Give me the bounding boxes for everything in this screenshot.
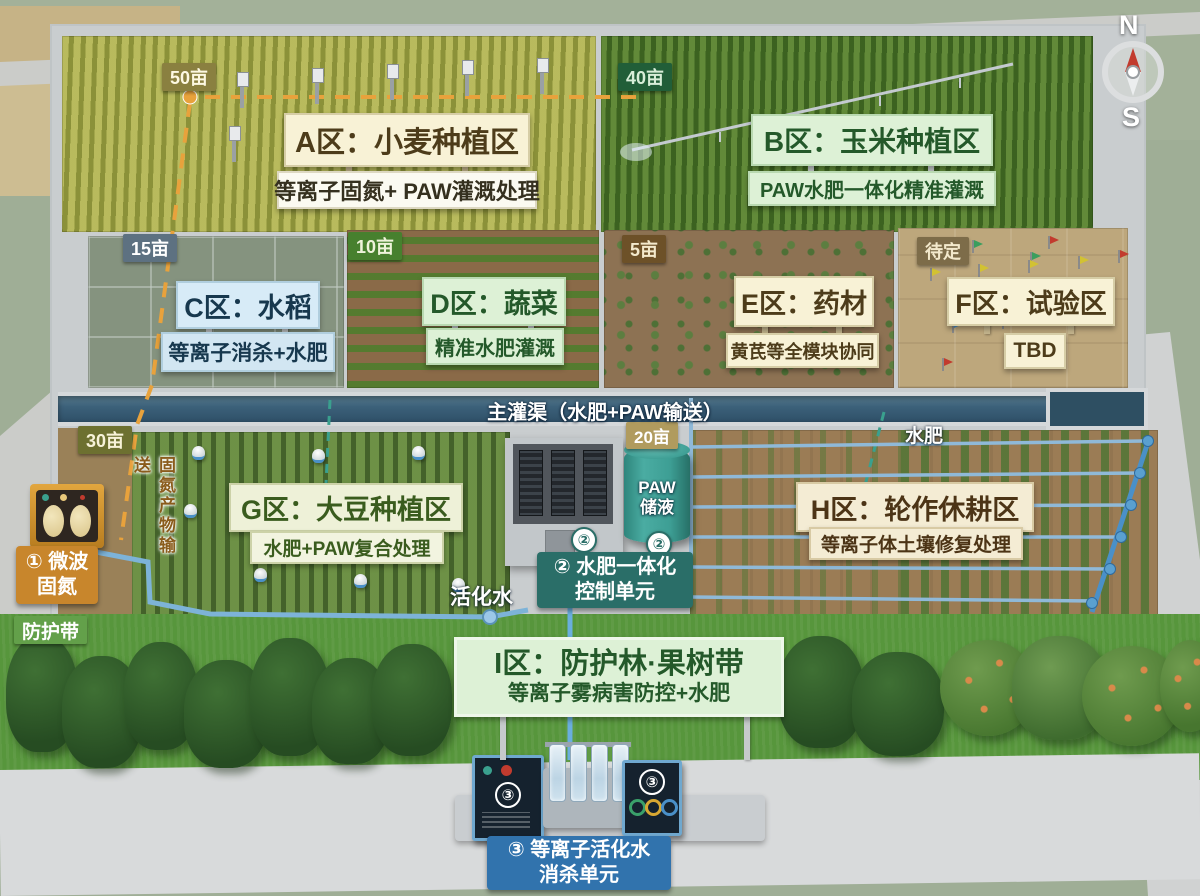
trial-flag bbox=[1048, 236, 1050, 249]
trial-flag bbox=[1118, 250, 1120, 263]
shelter-belt-badge: 防护带 bbox=[14, 616, 87, 644]
zone-h-sign-subtitle: 等离子体土壤修复处理 bbox=[809, 527, 1023, 560]
server-rack bbox=[519, 450, 543, 516]
farm-plan-diagram: PAW 储液 ② ② ③ ③ A区：小麦种植区 等离子固氮+ PAW灌溉处理 bbox=[0, 0, 1200, 896]
paw-tank-label: PAW 储液 bbox=[624, 478, 690, 519]
microwave-cavity bbox=[70, 505, 91, 537]
microwave-callout-line1: ① 微波 bbox=[26, 550, 89, 575]
zone-h-sign-title: H区：轮作休耕区 bbox=[796, 482, 1034, 532]
zone-e-sign-title: E区：药材 bbox=[734, 276, 874, 327]
zone-b-area-badge: 40亩 bbox=[618, 63, 672, 91]
microwave-machine-panel bbox=[36, 490, 98, 542]
zone-i-sign: I区：防护林·果树带 等离子雾病害防控+水肥 bbox=[454, 637, 784, 717]
sprinkler-dome bbox=[184, 504, 197, 518]
field-sensor bbox=[540, 70, 544, 94]
compass-south-label: S bbox=[1122, 102, 1140, 133]
zone-d-sign-subtitle: 精准水肥灌溉 bbox=[426, 328, 564, 365]
paw-tank-label-line2: 储液 bbox=[640, 498, 674, 517]
indicator-dot-red bbox=[501, 765, 512, 776]
evergreen-tree bbox=[778, 636, 864, 748]
zone-e-area-badge: 5亩 bbox=[622, 235, 666, 263]
zone-a-sign-subtitle: 等离子固氮+ PAW灌溉处理 bbox=[277, 171, 537, 209]
compass-icon bbox=[1101, 40, 1165, 104]
zone-g-area-badge: 30亩 bbox=[78, 426, 132, 454]
sprinkler-dome bbox=[192, 446, 205, 460]
paw-tank-label-line1: PAW bbox=[638, 478, 675, 497]
plasma-water-callout: ③ 等离子活化水 消杀单元 bbox=[487, 836, 671, 890]
step3-badge-left-panel: ③ bbox=[495, 782, 521, 808]
activated-water-label: 活化水 bbox=[450, 581, 513, 611]
microwave-cavity bbox=[43, 505, 64, 537]
status-ring-green bbox=[629, 799, 646, 816]
canal-end-pool bbox=[1046, 388, 1148, 430]
server-rack bbox=[583, 450, 607, 516]
zone-a-area-badge: 50亩 bbox=[162, 63, 216, 91]
zone-i-sign-title: I区：防护林·果树带 bbox=[494, 648, 744, 681]
zone-f-sign-subtitle: TBD bbox=[1004, 333, 1066, 369]
trial-flag bbox=[978, 264, 980, 277]
nitrogen-transport-label: 固氮产物输送 bbox=[128, 456, 178, 572]
microwave-callout-line2: 固氮 bbox=[37, 575, 77, 600]
fertilizer-water-label: 水肥 bbox=[905, 421, 943, 448]
sprinkler-dome bbox=[312, 449, 325, 463]
control-building-roof-opening bbox=[513, 444, 613, 524]
zone-f-area-badge: 待定 bbox=[917, 237, 969, 265]
glass-reactor-tube bbox=[549, 744, 566, 802]
field-sensor bbox=[465, 72, 469, 96]
trial-flag bbox=[942, 358, 944, 371]
fertigation-callout-line2: 控制单元 bbox=[575, 580, 655, 605]
zone-f-sign-title: F区：试验区 bbox=[947, 277, 1115, 326]
sign-post bbox=[744, 710, 750, 760]
evergreen-tree bbox=[372, 644, 452, 756]
sign-post bbox=[500, 710, 506, 760]
indicator-dot-red bbox=[80, 495, 85, 500]
glass-reactor-tube bbox=[570, 744, 587, 802]
microwave-nitrogen-callout: ① 微波 固氮 bbox=[16, 546, 98, 604]
plasma-unit-right-panel: ③ bbox=[622, 760, 682, 836]
panel-text-lines bbox=[482, 812, 530, 828]
zone-i-sign-subtitle: 等离子雾病害防控+水肥 bbox=[508, 681, 730, 706]
zone-d-area-badge: 10亩 bbox=[348, 232, 402, 260]
sprinkler-dome bbox=[412, 446, 425, 460]
zone-h-area-badge: 20亩 bbox=[626, 422, 678, 449]
zone-g-sign-title: G区：大豆种植区 bbox=[229, 483, 463, 532]
plasma-callout-line1: ③ 等离子活化水 bbox=[508, 838, 651, 863]
plasma-callout-line2: 消杀单元 bbox=[539, 863, 619, 888]
zone-c-area-badge: 15亩 bbox=[123, 234, 177, 262]
server-rack bbox=[551, 450, 575, 516]
indicator-dot-amber bbox=[60, 494, 67, 501]
trial-flag bbox=[1078, 256, 1080, 269]
zone-a-sign-title: A区：小麦种植区 bbox=[284, 113, 530, 167]
sprinkler-dome bbox=[254, 568, 267, 582]
field-sensor bbox=[315, 80, 319, 104]
evergreen-tree bbox=[852, 652, 944, 756]
field-sensor bbox=[390, 76, 394, 100]
status-ring-amber bbox=[645, 799, 662, 816]
fertigation-callout-line1: ② 水肥一体化 bbox=[554, 555, 677, 580]
step2-badge-building: ② bbox=[571, 527, 597, 553]
fertigation-control-callout: ② 水肥一体化 控制单元 bbox=[537, 552, 693, 608]
field-sensor bbox=[240, 84, 244, 108]
trial-flag bbox=[1028, 260, 1030, 273]
step3-badge-right-panel: ③ bbox=[639, 769, 665, 795]
zone-c-sign-subtitle: 等离子消杀+水肥 bbox=[161, 332, 335, 372]
field-sensor bbox=[232, 138, 236, 162]
zone-b-sign-subtitle: PAW水肥一体化精准灌溉 bbox=[748, 171, 996, 206]
zone-e-sign-subtitle: 黄芪等全模块协同 bbox=[726, 333, 879, 368]
zone-d-sign-title: D区：蔬菜 bbox=[422, 277, 566, 326]
zone-g-sign-subtitle: 水肥+PAW复合处理 bbox=[250, 531, 444, 564]
trial-flag bbox=[972, 240, 974, 253]
sprinkler-dome bbox=[354, 574, 367, 588]
compass-north-label: N bbox=[1119, 10, 1139, 41]
control-building bbox=[505, 438, 623, 566]
trial-flag bbox=[930, 268, 932, 281]
zone-c-sign-title: C区：水稻 bbox=[176, 281, 320, 329]
canal-label: 主灌渠（水肥+PAW输送） bbox=[450, 396, 760, 425]
glass-reactor-tube bbox=[591, 744, 608, 802]
microwave-nitrogen-machine bbox=[30, 484, 104, 548]
indicator-dot-teal bbox=[42, 494, 49, 501]
status-ring-blue bbox=[661, 799, 678, 816]
indicator-dot-teal bbox=[483, 766, 492, 775]
zone-b-sign-title: B区：玉米种植区 bbox=[751, 114, 993, 166]
plasma-unit-left-panel: ③ bbox=[472, 755, 544, 841]
